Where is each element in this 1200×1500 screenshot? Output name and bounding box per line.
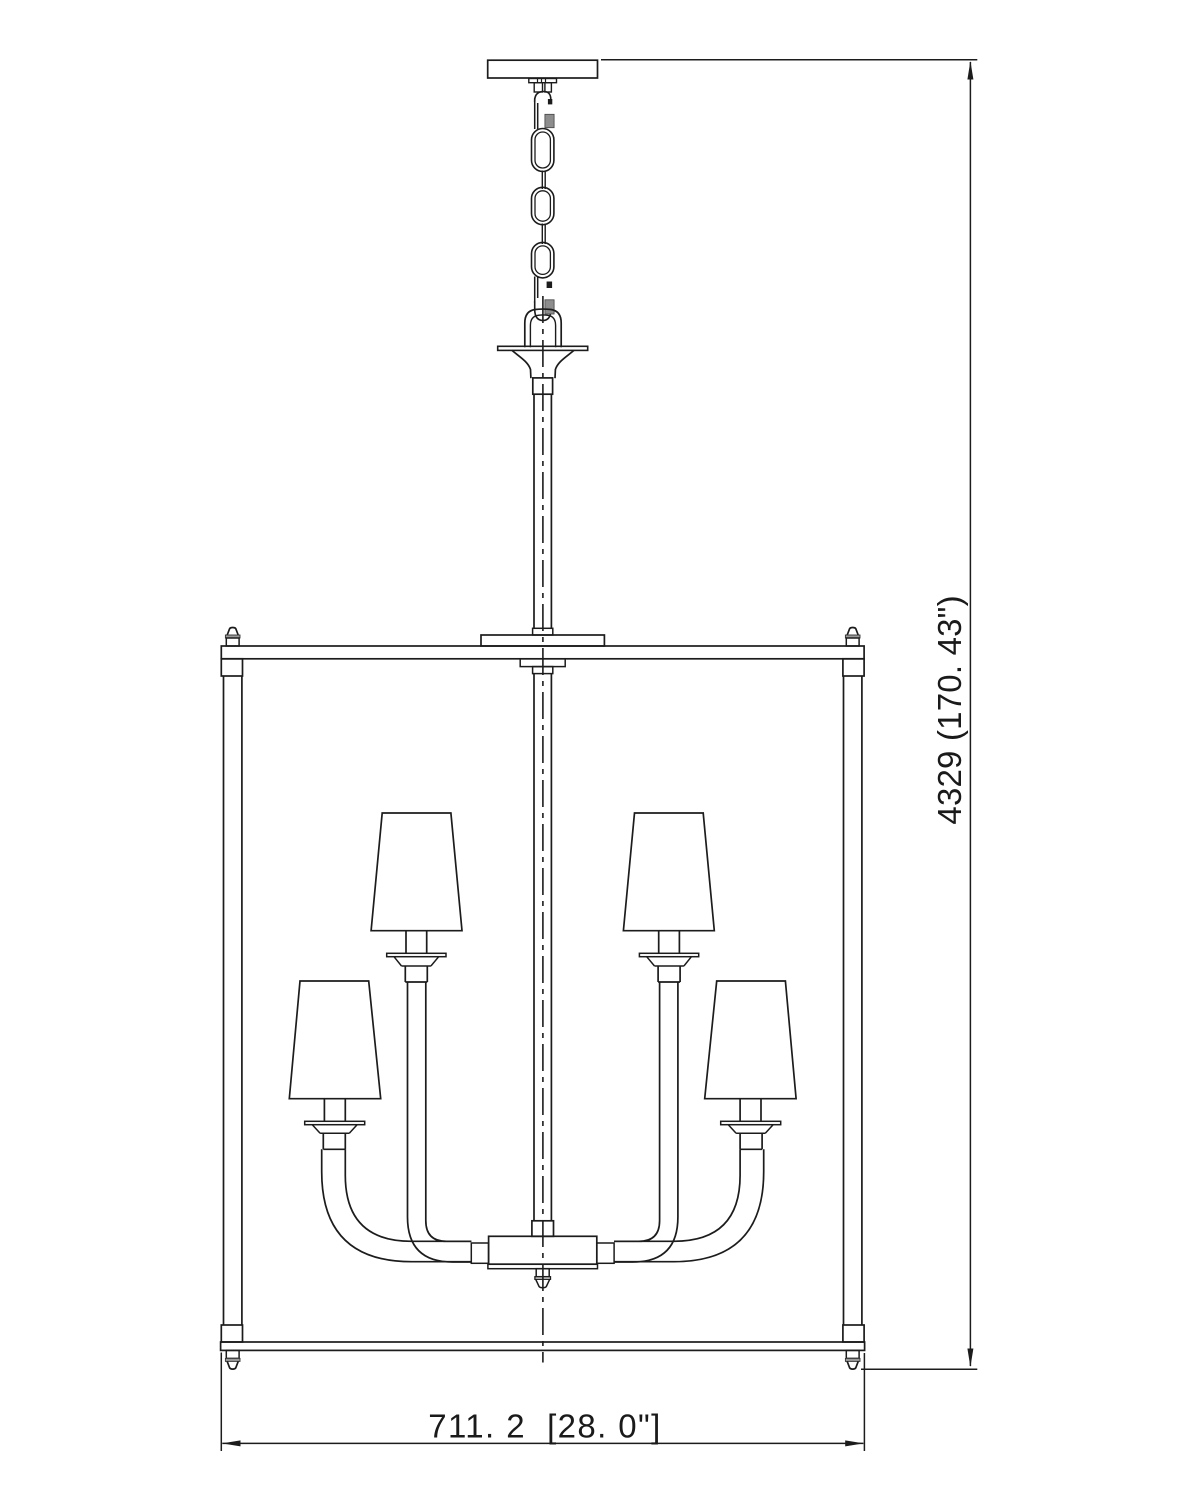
svg-text:4329 (170. 43"): 4329 (170. 43") (931, 595, 968, 824)
svg-text:711. 2 [28. 0"]: 711. 2 [28. 0"] (428, 1408, 661, 1445)
